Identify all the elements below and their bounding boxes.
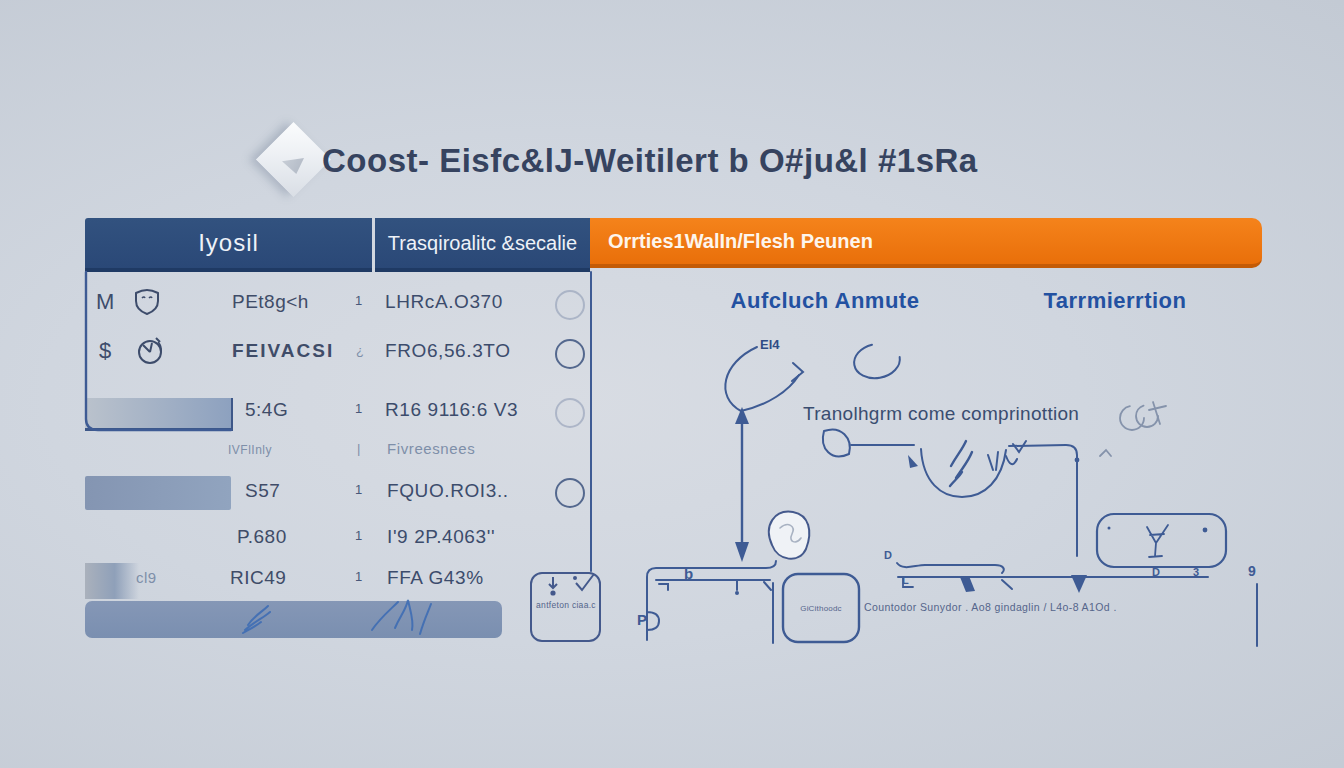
row7-value: FFA G43%	[387, 567, 484, 589]
side-note-text: antfeton ciaa.c	[533, 600, 599, 610]
table-header-left: Iyosil	[85, 218, 372, 272]
row2-name: FEIVACSI	[232, 340, 334, 362]
glyph-nine: 9	[1248, 563, 1256, 579]
arc-arrow-label: El4	[760, 337, 780, 352]
glyph-l: L	[902, 574, 909, 586]
diagram-center-text: Tranolhgrm come comprinottion	[803, 403, 1079, 425]
row6-qty: 1	[355, 528, 362, 543]
checkmark-icon	[572, 572, 596, 598]
row5-progress-bar	[85, 476, 231, 510]
page-title: Coost- Eisfc&lJ-Weitilert b O#ju&l #1sRa	[322, 142, 978, 180]
row2-value: FRO6,56.3TO	[385, 340, 511, 362]
row1-name: PEt8g<h	[232, 291, 309, 313]
row4-name: IVFlInly	[228, 443, 272, 457]
row3-name: 5:4G	[245, 399, 288, 421]
row5-name: S57	[245, 480, 280, 502]
glyph-three: 3	[1193, 566, 1199, 578]
diamond-logo-icon	[256, 122, 331, 197]
row3-progress-bar	[85, 398, 233, 431]
glyph-p: P	[637, 611, 647, 628]
diagram-node-label: GiCithoodc	[783, 574, 859, 642]
row7-prefix: cl9	[136, 569, 157, 586]
row4-value: Fivreesnees	[387, 440, 475, 457]
clock-icon	[134, 334, 166, 370]
table-header-orange: Orrties1WalIn/Flesh Peunen	[590, 218, 1262, 268]
diagram-caption: Countodor Sunydor . Ao8 gindaglin / L4o-…	[864, 601, 1117, 613]
row4-qty: |	[357, 441, 360, 456]
glyph-d2: D	[1152, 566, 1160, 578]
row3-value: R16 9116:6 V3	[385, 399, 518, 421]
row7-name: RIC49	[230, 567, 286, 589]
download-arrow-icon	[543, 576, 563, 602]
glyph-d1: D	[884, 549, 892, 561]
glyph-b: b	[684, 565, 693, 582]
diagram-column-header-left: Aufcluch Anmute	[705, 288, 945, 314]
row1-letter-icon: M	[96, 289, 114, 315]
row1-radio[interactable]	[555, 290, 585, 320]
row7-qty: 1	[355, 569, 362, 584]
row5-qty: 1	[355, 482, 362, 497]
row6-value: I'9 2P.4063''	[387, 526, 495, 548]
diagram-column-header-right: Tarrmierrtion	[1005, 288, 1225, 314]
infographic-canvas: Coost- Eisfc&lJ-Weitilert b O#ju&l #1sRa…	[0, 0, 1344, 768]
row6-name: P.680	[237, 526, 287, 548]
row2-letter-icon: $	[99, 338, 111, 364]
row2-qty: ¿	[356, 343, 364, 358]
row3-radio[interactable]	[555, 398, 585, 428]
table-footer-bar	[85, 601, 502, 638]
row2-radio[interactable]	[555, 339, 585, 369]
row1-qty: 1	[355, 293, 362, 308]
row7-progress-bar	[85, 563, 139, 599]
flow-diagram	[0, 0, 1344, 768]
table-header-mid: Trasqiroalitc &secalie	[375, 218, 590, 272]
shield-icon	[133, 288, 161, 320]
row5-value: FQUO.ROI3..	[387, 480, 509, 502]
row1-value: LHRcA.O370	[385, 291, 503, 313]
row3-qty: 1	[355, 401, 362, 416]
row5-radio[interactable]	[555, 478, 585, 508]
